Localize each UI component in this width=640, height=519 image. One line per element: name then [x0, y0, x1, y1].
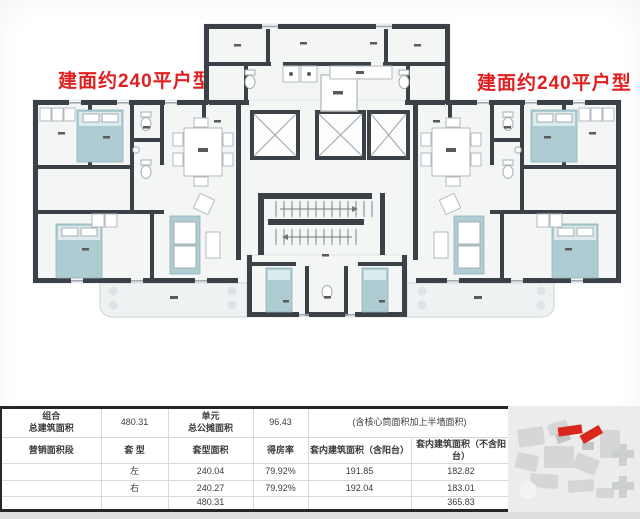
cell-type: 左: [101, 464, 168, 481]
site-map-thumbnail: [508, 406, 640, 512]
combo-total-area-label: 组合 总建筑面积: [1, 408, 101, 438]
table-row: 左 240.04 79.92% 191.85 182.82: [1, 464, 511, 481]
col-header-segment: 营销面积段: [1, 438, 101, 464]
balcony-left: [100, 283, 247, 317]
col-header-no-balcony: 套内建筑面积（不含阳台）: [411, 438, 511, 464]
cell-segment: [1, 464, 101, 481]
cell-no-balcony-total: 365.83: [411, 497, 511, 511]
cell-area: 240.27: [168, 481, 253, 497]
cell-rate: [253, 497, 308, 511]
cell-with-balcony: [308, 497, 411, 511]
combo-total-area-value: 480.31: [101, 408, 168, 438]
bed-icon: [531, 110, 577, 162]
balcony-right: [407, 283, 554, 317]
building-outline: [33, 24, 621, 317]
cell-rate: 79.92%: [253, 464, 308, 481]
core-note: (含核心筒面积加上半墙面积): [308, 408, 511, 438]
table-header-row: 营销面积段 套 型 套型面积 得房率 套内建筑面积（含阳台） 套内建筑面积（不含…: [1, 438, 511, 464]
cell-type: [101, 497, 168, 511]
bed-icon: [77, 110, 123, 162]
cell-area: 240.04: [168, 464, 253, 481]
col-header-rate: 得房率: [253, 438, 308, 464]
cell-with-balcony: 191.85: [308, 464, 411, 481]
area-spec-table: 组合 总建筑面积 480.31 单元 总公摊面积 96.43 (含核心筒面积加上…: [0, 406, 512, 512]
site-roundabout: [519, 481, 537, 499]
floor-plan: [0, 0, 640, 400]
elevator-shaft-icon: [317, 112, 364, 158]
col-header-area: 套型面积: [168, 438, 253, 464]
cell-no-balcony: 182.82: [411, 464, 511, 481]
screenshot-root: 建面约240平户型 建面约240平户型: [0, 0, 640, 519]
bed-icon: [552, 224, 598, 278]
elevator-shaft-icon: [252, 112, 298, 158]
col-header-with-balcony: 套内建筑面积（含阳台）: [308, 438, 411, 464]
col-header-type: 套 型: [101, 438, 168, 464]
cell-rate: 79.92%: [253, 481, 308, 497]
table-total-row: 480.31 365.83: [1, 497, 511, 511]
table-row: 组合 总建筑面积 480.31 单元 总公摊面积 96.43 (含核心筒面积加上…: [1, 408, 511, 438]
elevator-shaft-icon: [369, 112, 408, 158]
cell-no-balcony: 183.01: [411, 481, 511, 497]
table-row: 右 240.27 79.92% 192.04 183.01: [1, 481, 511, 497]
cell-area-total: 480.31: [168, 497, 253, 511]
unit-shared-area-value: 96.43: [253, 408, 308, 438]
bed-icon: [56, 224, 102, 278]
cell-segment: [1, 481, 101, 497]
unit-shared-area-label: 单元 总公摊面积: [168, 408, 253, 438]
bed-icon: [266, 268, 292, 312]
bed-icon: [362, 268, 388, 312]
cell-segment: [1, 497, 101, 511]
cell-with-balcony: 192.04: [308, 481, 411, 497]
cell-type: 右: [101, 481, 168, 497]
bottom-strip: [0, 512, 640, 519]
